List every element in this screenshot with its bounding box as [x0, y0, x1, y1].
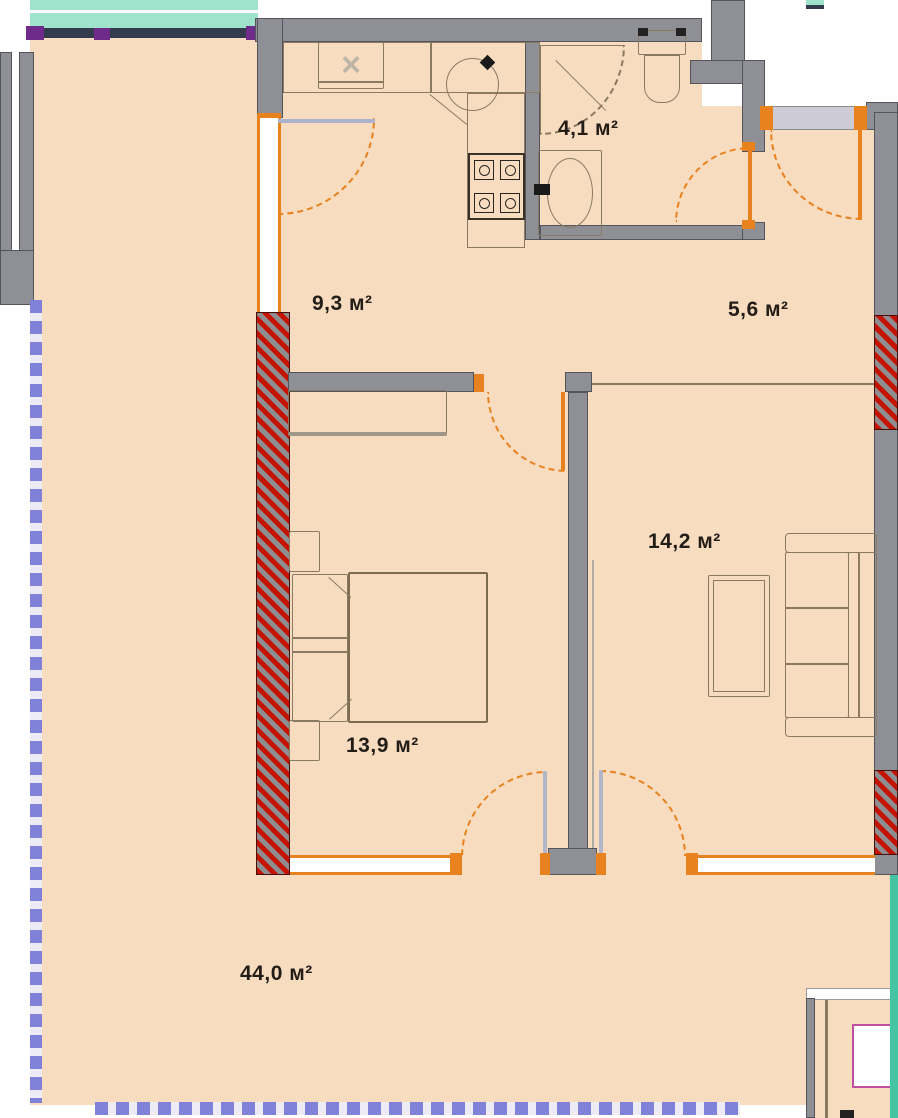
toilet-bowl-icon: [644, 55, 680, 103]
area-label-corridor: 5,6 м²: [728, 298, 789, 322]
neighbor-wall: [0, 250, 34, 305]
stove-icon: [468, 153, 525, 220]
bed-headboard: [292, 574, 348, 722]
terrace-railing-bottom: [95, 1102, 740, 1115]
area-label-kitchen-hall: 9,3 м²: [312, 292, 373, 316]
pillar-right-upper: [874, 315, 898, 430]
counter-divider: [430, 42, 432, 93]
balcony-glazing: [30, 0, 258, 28]
wall-right: [874, 112, 898, 875]
area-label-bedroom: 13,9 м²: [346, 734, 419, 758]
coffee-table-inner: [713, 580, 765, 692]
neighbor-wall-vertical: [806, 998, 815, 1118]
glazing-post: [94, 28, 110, 40]
door-leaf-bedroom: [561, 392, 565, 470]
door-post: [760, 106, 773, 130]
door-post: [540, 853, 550, 875]
door-post: [474, 374, 484, 392]
wall-stub: [565, 372, 592, 392]
area-label-bathroom: 4,1 м²: [558, 117, 619, 141]
door-leaf-living-terrace: [599, 770, 603, 857]
dark-mark: [840, 1110, 854, 1118]
sofa-seats: [785, 552, 849, 718]
corridor-living-divider-line: [592, 383, 874, 385]
wall-top: [255, 18, 702, 42]
door-post: [596, 853, 606, 875]
coffee-table: [708, 575, 770, 697]
floor-plan: × 4,1 м²: [0, 0, 898, 1118]
bed-line: [292, 651, 348, 653]
door-leaf-entrance: [858, 130, 862, 220]
neighbor-glazing-edge: [890, 875, 898, 1118]
window-living: [690, 855, 875, 875]
area-label-living-room: 14,2 м²: [648, 530, 721, 554]
balcony-glazing-frame: [30, 28, 258, 38]
wall-bedroom-living: [568, 392, 588, 850]
door-post: [686, 853, 698, 875]
wall-left-upper: [257, 18, 283, 118]
sofa-armrest: [785, 533, 877, 553]
bed: [348, 572, 488, 723]
glazing-post: [26, 26, 44, 40]
door-leaf-bedroom-terrace: [543, 771, 547, 857]
wall-edge-line: [592, 560, 594, 848]
wall-shaft-connector: [690, 60, 745, 84]
wall-hall-bedroom: [288, 372, 474, 392]
bed-line: [292, 637, 348, 639]
terrace-railing-left: [30, 300, 42, 1103]
nightstand: [289, 720, 320, 761]
washbasin-tap-icon: [534, 184, 550, 195]
washing-machine-line: [318, 81, 384, 83]
door-leaf-balcony: [278, 119, 375, 123]
pillar-right-lower: [874, 770, 898, 855]
door-post: [742, 220, 755, 229]
area-label-terrace: 44,0 м²: [240, 962, 313, 986]
neighbor-line: [825, 1000, 828, 1118]
pillar-left: [256, 312, 290, 875]
toilet-mark: [676, 28, 686, 36]
balcony-glazing-frame-fragment: [806, 5, 824, 9]
window-bedroom: [290, 855, 452, 875]
door-leaf-bathroom: [748, 147, 752, 222]
toilet-mark: [638, 28, 648, 36]
door-post: [742, 142, 755, 151]
sofa-armrest: [785, 717, 877, 737]
neighbor-lintel: [806, 988, 898, 1000]
door-post: [450, 853, 462, 875]
washing-machine-mark: ×: [341, 46, 361, 85]
sofa-backrest: [848, 552, 877, 718]
nightstand: [289, 531, 320, 572]
wardrobe: [288, 390, 447, 436]
washbasin-bowl-icon: [547, 158, 593, 228]
door-post: [854, 106, 867, 130]
wall-bottom-stub: [548, 848, 597, 875]
